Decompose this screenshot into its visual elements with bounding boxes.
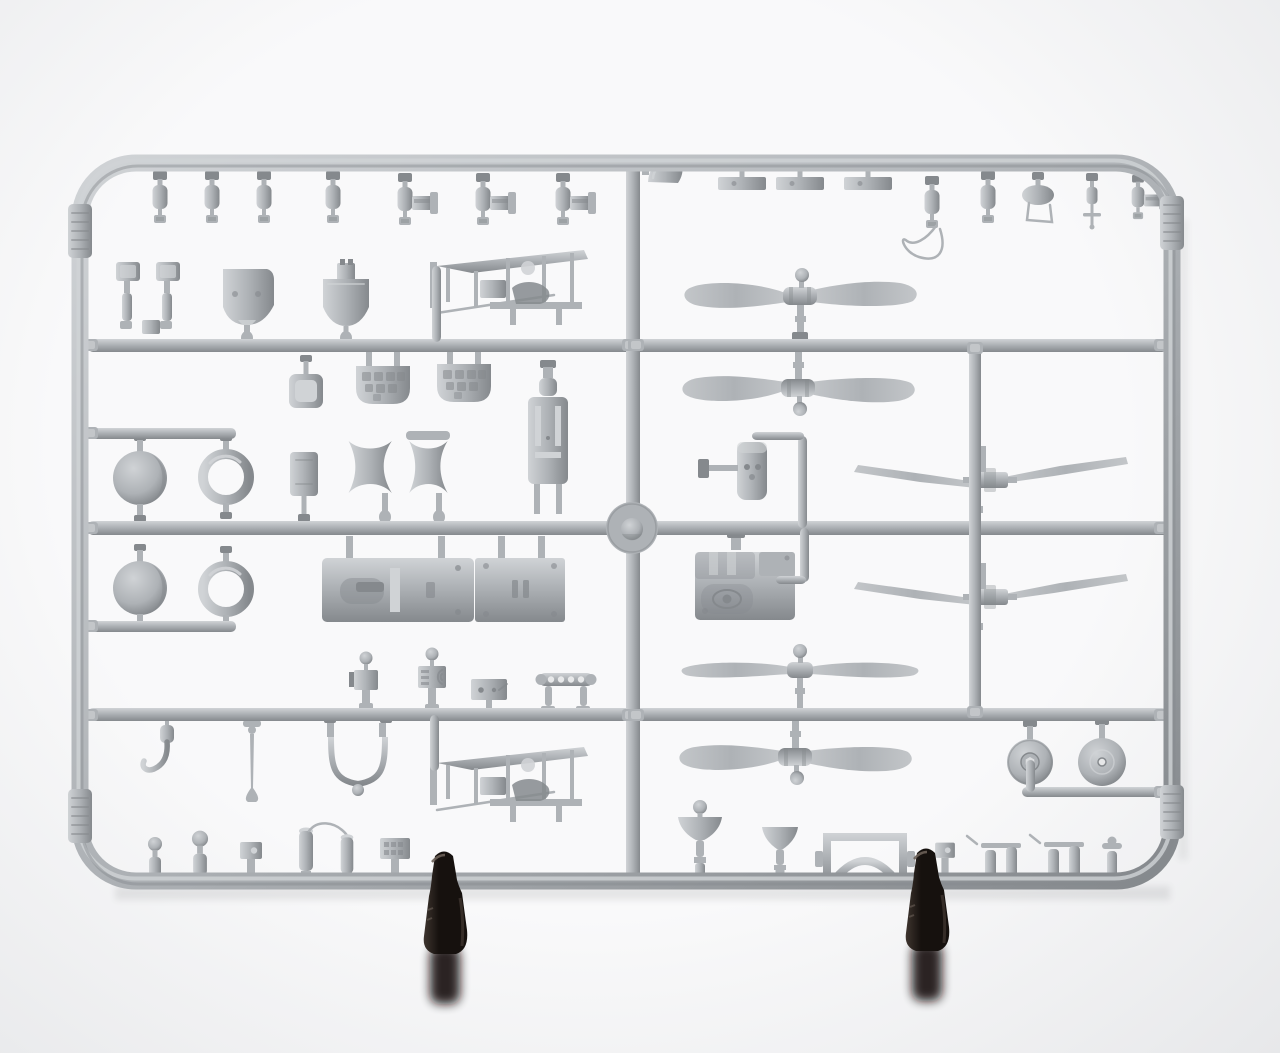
- firewall-bulkhead-part: [323, 259, 369, 345]
- machine-gun-part: [476, 173, 517, 225]
- runner-tube: [798, 436, 807, 528]
- seat-back-assembly: [698, 442, 767, 500]
- propeller-paddle: [682, 343, 914, 416]
- runner-tube: [88, 621, 236, 632]
- u-bracket-part: [324, 716, 392, 796]
- runner-tube: [752, 432, 804, 440]
- spinner-dome-part: [113, 544, 167, 632]
- small-cylinder-part: [981, 171, 996, 223]
- gate-nub: [628, 709, 644, 721]
- control-stick-part: [243, 714, 261, 802]
- runner-tube: [1026, 760, 1035, 792]
- runner-tube: [432, 266, 441, 342]
- runner-tube: [430, 715, 439, 771]
- rail-with-holes-part: [536, 673, 597, 714]
- small-cylinder-part: [205, 171, 220, 223]
- embossed-frame-tab: [68, 204, 92, 258]
- instrument-panel-part: [356, 351, 410, 404]
- radio-box-part: [418, 648, 446, 713]
- propeller-paddle: [679, 712, 911, 785]
- soft-shadows: [115, 220, 1188, 900]
- gate-nub: [628, 339, 644, 351]
- sprue-injection-hub: [606, 502, 658, 554]
- fuselage-girder-frame-part: [430, 250, 588, 325]
- cowling-ring-part: [203, 546, 249, 631]
- small-cylinder-part: [257, 171, 272, 223]
- fuselage-decking-part: [475, 536, 565, 622]
- runner-tube: [633, 708, 1167, 721]
- machine-gun-part: [398, 173, 439, 225]
- fitting-with-ball-part: [349, 652, 378, 712]
- runner-tube: [800, 528, 809, 582]
- small-cylinder-part: [153, 171, 168, 223]
- machine-gun-part: [556, 173, 597, 225]
- fuselage-decking-part: [322, 536, 474, 622]
- runner-tube: [88, 339, 633, 352]
- gate-nub: [967, 706, 983, 718]
- radiator-panel-part: [528, 360, 568, 514]
- display-clips: [424, 849, 950, 1005]
- small-cylinder-part: [326, 171, 341, 223]
- cowl-saddle-parts: [349, 431, 450, 524]
- disc-wheel-plain: [1078, 718, 1126, 786]
- propeller-pointed: [854, 446, 1128, 513]
- embossed-frame-tab: [68, 789, 92, 843]
- runner-tube: [88, 428, 236, 439]
- venturi-funnel-part: [678, 800, 722, 885]
- sprue-illustration: [0, 0, 1280, 1053]
- hook-lever-part: [143, 714, 174, 770]
- photo-of-model-kit-sprue: Photograph of a light-gray injection-mol…: [0, 0, 1280, 1053]
- firewall-bulkhead-part: [223, 269, 274, 345]
- embossed-frame-tab: [1160, 785, 1184, 839]
- runner-tube: [633, 339, 1167, 352]
- embossed-frame-tab: [1160, 196, 1184, 250]
- engine-block-part: [695, 530, 795, 620]
- runner-tube: [88, 708, 633, 721]
- runner-tube: [1022, 787, 1168, 797]
- runner-tube: [776, 576, 806, 584]
- gate-nub: [967, 342, 983, 354]
- fuselage-girder-frame-part: [430, 747, 588, 822]
- tank-with-bracket-part: [1022, 172, 1054, 222]
- spinner-dome-part: [113, 434, 167, 522]
- propeller-paddle: [684, 268, 916, 341]
- cylinder-with-cross-part: [1083, 173, 1101, 230]
- sprue-photo-figure: Photograph of a light-gray injection-mol…: [0, 0, 1280, 1053]
- square-pan-part: [289, 355, 323, 408]
- instrument-panel-part: [437, 349, 491, 402]
- small-plate-part: [290, 452, 318, 522]
- cowling-ring-part: [203, 434, 249, 519]
- runner-tube: [969, 345, 981, 717]
- propeller-slim: [682, 644, 919, 718]
- propeller-pointed: [854, 563, 1128, 630]
- cylinder-with-wire-part: [903, 176, 942, 259]
- seat-pair-part: [116, 262, 180, 334]
